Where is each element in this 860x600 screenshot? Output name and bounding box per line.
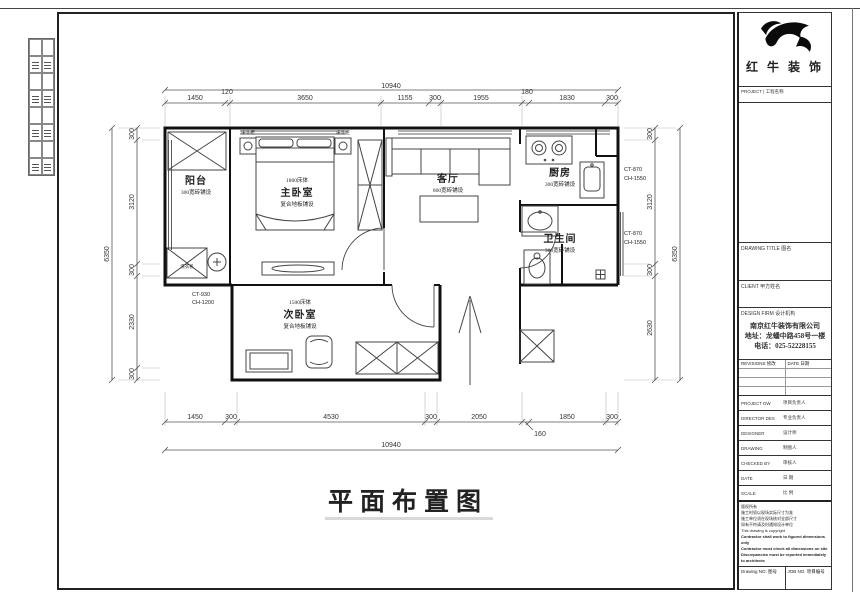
dim: 3120 — [129, 194, 136, 210]
entry-arrow — [459, 296, 481, 385]
bath-ct-tag: CT-870 — [624, 231, 642, 237]
dim: 300 — [429, 95, 441, 102]
info-label: DESIGNER — [741, 431, 783, 436]
room-master-finish: 复合地板铺设 — [280, 200, 314, 208]
firm-name: 南京红牛装饰有限公司 — [741, 321, 829, 331]
room-second: 次卧室 — [284, 308, 317, 321]
second-bed-size: 1500床体 — [289, 298, 312, 306]
info-value: 日 期 — [783, 475, 829, 481]
company-name-logo: 红 牛 装 饰 — [746, 58, 824, 75]
project-label: PROJECT | 工程名称 — [739, 87, 831, 103]
room-bath: 卫生间 — [544, 232, 577, 245]
info-value: 项目负责人 — [783, 400, 829, 406]
room-kitchen-finish: 300宽砖铺设 — [545, 180, 576, 188]
info-row: DATE 日 期 — [739, 470, 831, 485]
balcony-furniture — [167, 132, 226, 278]
dim: 1450 — [187, 414, 203, 421]
info-value: 比 例 — [783, 490, 829, 496]
dim-left-total: 6350 — [104, 246, 111, 262]
info-value: 制图人 — [783, 445, 829, 451]
extension-lines — [118, 96, 676, 426]
dim: 2630 — [647, 320, 654, 336]
info-row: DRAWING 制图人 — [739, 440, 831, 455]
dim: 120 — [221, 89, 233, 96]
info-value: 审核人 — [783, 460, 829, 466]
dim: 1850 — [559, 414, 575, 421]
number-row: Drawing NO. 图号 JOB NO. 项目编号 — [739, 566, 831, 589]
info-label: PROJECT DW — [741, 401, 783, 406]
dim: 1955 — [473, 95, 489, 102]
dim: 1450 — [187, 95, 203, 102]
bath-ch-tag: CH-1550 — [624, 240, 646, 246]
dim-right-total: 6350 — [672, 246, 679, 262]
sofa-chaise — [479, 149, 510, 185]
drawing-sheet: 10940 1450 120 3650 1155 300 1955 180 18… — [0, 0, 860, 600]
pillow — [259, 139, 293, 147]
balcony-ch-tag: CH-1200 — [192, 300, 214, 306]
drawing-no-label: Drawing NO. 图号 — [739, 567, 786, 589]
dim-top-total: 10940 — [381, 83, 401, 90]
nightstand — [240, 138, 256, 154]
info-label: DRAWING — [741, 446, 783, 451]
dim: 160 — [534, 431, 546, 438]
revision-row — [739, 368, 831, 377]
room-kitchen: 厨房 — [549, 166, 571, 179]
dim: 300 — [129, 368, 136, 380]
nightstand — [335, 138, 351, 154]
dim: 1155 — [397, 95, 412, 102]
chair — [306, 336, 332, 368]
floor-plan: 10940 1450 120 3650 1155 300 1955 180 18… — [0, 0, 860, 600]
stove — [526, 136, 572, 164]
dim: 300 — [129, 264, 136, 276]
dim: 3120 — [647, 194, 654, 210]
title-block: 红 牛 装 饰 PROJECT | 工程名称 DRAWING TITLE 图名 … — [737, 12, 832, 590]
dim: 300 — [606, 414, 618, 421]
nightstand-label: 床头柜 — [241, 129, 255, 136]
plan-title: 平面布置图 — [328, 487, 488, 516]
info-row: DESIGNER 设计师 — [739, 425, 831, 440]
firm-phone: 电话：025-52228155 — [741, 341, 829, 351]
revisions-table: REVISIONS 修改 DATE 日期 — [739, 359, 831, 395]
room-living: 客厅 — [436, 172, 459, 185]
project-blank-area — [739, 103, 831, 242]
coffee-table — [420, 196, 478, 222]
dim: 300 — [647, 128, 654, 140]
room-living-finish: 800宽砖铺设 — [433, 186, 464, 194]
sofa-back — [392, 138, 510, 149]
nightstand-label: 床头柜 — [336, 129, 350, 136]
notes-block: 版权所有 施工时须以现场实际尺寸为准 施工单位须在现场核对全部尺寸 如有不符请及… — [739, 500, 831, 566]
note-line: Discrepancies must be reported immediate… — [741, 552, 829, 564]
washbasin — [528, 212, 552, 230]
drawing-title-section: DRAWING TITLE 图名 — [739, 242, 831, 280]
firm-address: 地址：龙蟠中路458号一楼 — [741, 331, 829, 341]
note-line: Contractor shall work to figured dimensi… — [741, 534, 829, 546]
dim: 300 — [425, 414, 437, 421]
dim: 300 — [606, 95, 618, 102]
second-bedroom-door — [392, 285, 434, 327]
revisions-date-label: DATE 日期 — [786, 360, 832, 368]
pillow — [297, 139, 331, 147]
bull-logo-icon — [752, 17, 818, 57]
bath-furniture — [522, 206, 605, 284]
dim-bottom-total: 10940 — [381, 442, 401, 449]
logo-block: 红 牛 装 饰 — [739, 13, 831, 87]
washer-label: 洗衣机 — [180, 263, 194, 270]
plan-title-underline — [325, 517, 493, 520]
room-bath-finish: 300宽砖铺设 — [545, 246, 576, 254]
window-symbols — [169, 131, 624, 276]
sofa-seat — [421, 149, 450, 174]
info-row: PROJECT DW 项目负责人 — [739, 395, 831, 410]
dim: 3650 — [297, 95, 313, 102]
sofa-armrest — [386, 138, 392, 176]
dim: 1830 — [559, 95, 575, 102]
room-second-finish: 复合地板铺设 — [283, 322, 317, 330]
sofa-seat — [392, 149, 421, 174]
info-row: DIRECTOR DES 专业负责人 — [739, 410, 831, 425]
dim: 2330 — [129, 314, 136, 330]
info-label: CHECKED BY — [741, 461, 783, 466]
design-firm-label: DESIGN FIRM 设计机构 — [741, 311, 795, 317]
info-row: SCALE 比 例 — [739, 485, 831, 500]
dim: 180 — [521, 89, 533, 96]
dim: 300 — [129, 128, 136, 140]
balcony-ct-tag: CT-930 — [192, 292, 210, 298]
revision-row — [739, 386, 831, 395]
master-door — [342, 228, 384, 270]
info-label: DATE — [741, 476, 783, 481]
sofa-seat — [450, 149, 479, 174]
room-balcony: 阳台 — [185, 174, 207, 187]
info-value: 专业负责人 — [783, 415, 829, 421]
kitchen-ct-tag: CT-870 — [624, 167, 642, 173]
dim: 4530 — [323, 414, 339, 421]
kitchen-furniture — [526, 136, 604, 198]
kitchen-ch-tag: CH-1550 — [624, 176, 646, 182]
job-no-label: JOB NO. 项目编号 — [786, 567, 832, 589]
tv-cabinet — [262, 262, 334, 275]
info-label: DIRECTOR DES — [741, 416, 783, 421]
revision-row — [739, 377, 831, 386]
client-section: CLIENT 甲方姓名 — [739, 280, 831, 307]
room-balcony-finish: 300宽砖铺设 — [181, 188, 212, 196]
revisions-label: REVISIONS 修改 — [739, 360, 786, 368]
design-firm-section: DESIGN FIRM 设计机构 南京红牛装饰有限公司 地址：龙蟠中路458号一… — [739, 307, 831, 359]
dim: 2050 — [471, 414, 487, 421]
dim: 300 — [225, 414, 237, 421]
dim: 300 — [647, 264, 654, 276]
info-row: CHECKED BY 审核人 — [739, 455, 831, 470]
info-value: 设计师 — [783, 430, 829, 436]
info-label: SCALE — [741, 491, 783, 496]
master-bed-size: 1800床体 — [286, 176, 309, 184]
room-master: 主卧室 — [281, 186, 314, 199]
